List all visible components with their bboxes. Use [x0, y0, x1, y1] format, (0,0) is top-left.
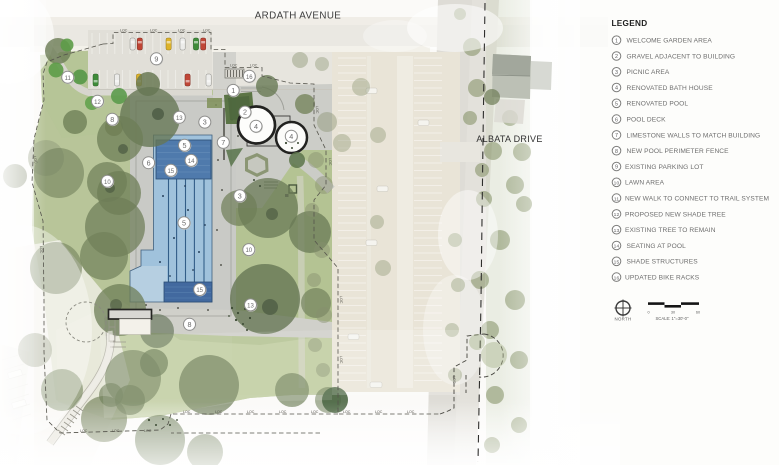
svg-text:12: 12	[614, 212, 620, 218]
svg-text:LOC: LOC	[339, 296, 343, 304]
svg-text:16: 16	[614, 275, 620, 281]
svg-text:3: 3	[238, 191, 242, 200]
svg-text:13: 13	[614, 228, 620, 234]
svg-text:LOC: LOC	[407, 410, 415, 414]
svg-text:0: 0	[647, 311, 649, 315]
svg-text:PICNIC AREA: PICNIC AREA	[627, 69, 670, 76]
svg-text:9: 9	[154, 54, 158, 63]
svg-text:LOC: LOC	[343, 410, 351, 414]
svg-text:14: 14	[614, 244, 620, 250]
svg-text:LIMESTONE WALLS TO MATCH BUILD: LIMESTONE WALLS TO MATCH BUILDING	[627, 132, 761, 139]
svg-text:15: 15	[614, 260, 620, 266]
svg-text:13: 13	[247, 304, 254, 310]
svg-text:GRAVEL ADJACENT TO BUILDING: GRAVEL ADJACENT TO BUILDING	[627, 53, 736, 60]
svg-text:NEW WALK TO CONNECT TO TRAIL S: NEW WALK TO CONNECT TO TRAIL SYSTEM	[625, 196, 769, 203]
svg-text:16: 16	[246, 75, 253, 81]
svg-text:LOC: LOC	[203, 28, 211, 32]
svg-text:2: 2	[243, 108, 247, 117]
svg-text:13: 13	[176, 116, 183, 122]
svg-text:LOC: LOC	[339, 356, 343, 364]
svg-text:7: 7	[615, 133, 618, 139]
svg-text:LOC: LOC	[452, 376, 456, 384]
svg-text:LOC: LOC	[250, 63, 258, 67]
svg-text:6: 6	[147, 158, 151, 167]
svg-text:POOL DECK: POOL DECK	[627, 117, 667, 124]
svg-text:15: 15	[167, 169, 174, 175]
svg-text:SCALE: 1"=30'-0": SCALE: 1"=30'-0"	[656, 316, 690, 321]
svg-text:LOC: LOC	[279, 410, 287, 414]
svg-text:NORTH: NORTH	[614, 317, 631, 322]
svg-text:EXISTING TREE TO REMAIN: EXISTING TREE TO REMAIN	[625, 227, 716, 234]
svg-text:UPDATED BIKE RACKS: UPDATED BIKE RACKS	[625, 275, 700, 282]
svg-text:5: 5	[183, 141, 187, 150]
svg-text:LOC: LOC	[230, 63, 238, 67]
svg-text:8: 8	[188, 320, 192, 329]
svg-text:NEW POOL PERIMETER FENCE: NEW POOL PERIMETER FENCE	[627, 148, 730, 155]
svg-text:4: 4	[615, 86, 618, 92]
svg-text:30: 30	[671, 311, 675, 315]
svg-text:12: 12	[94, 100, 101, 106]
svg-text:5: 5	[182, 218, 186, 227]
svg-text:1: 1	[231, 86, 235, 95]
svg-text:2: 2	[615, 54, 618, 60]
svg-text:LOC: LOC	[150, 28, 158, 32]
svg-text:10: 10	[245, 248, 252, 254]
svg-text:LOC: LOC	[311, 410, 319, 414]
svg-text:LOC: LOC	[144, 429, 152, 433]
svg-text:LOC: LOC	[112, 429, 120, 433]
svg-text:EXISTING PARKING LOT: EXISTING PARKING LOT	[625, 164, 703, 171]
svg-text:4: 4	[289, 132, 293, 141]
svg-text:7: 7	[221, 138, 225, 147]
svg-text:6: 6	[615, 117, 618, 123]
svg-text:LOC: LOC	[178, 28, 186, 32]
svg-text:LOC: LOC	[39, 246, 44, 254]
svg-text:4: 4	[254, 122, 258, 131]
svg-text:LOC: LOC	[375, 410, 383, 414]
svg-text:LOC: LOC	[328, 158, 332, 166]
svg-text:10: 10	[614, 181, 620, 187]
svg-text:SHADE STRUCTURES: SHADE STRUCTURES	[627, 259, 699, 266]
svg-text:LOC: LOC	[315, 106, 319, 114]
svg-text:LOC: LOC	[80, 429, 88, 433]
svg-text:RENOVATED POOL: RENOVATED POOL	[627, 101, 689, 108]
svg-text:PROPOSED NEW SHADE TREE: PROPOSED NEW SHADE TREE	[625, 211, 726, 218]
svg-text:WELCOME GARDEN AREA: WELCOME GARDEN AREA	[627, 38, 713, 45]
svg-text:9: 9	[615, 165, 618, 171]
svg-text:8: 8	[615, 149, 618, 155]
svg-text:3: 3	[615, 70, 618, 76]
svg-text:SEATING AT POOL: SEATING AT POOL	[627, 243, 687, 250]
svg-text:ARDATH AVENUE: ARDATH AVENUE	[255, 11, 342, 22]
svg-text:RENOVATED BATH HOUSE: RENOVATED BATH HOUSE	[627, 85, 714, 92]
svg-text:5: 5	[615, 102, 618, 108]
svg-text:14: 14	[188, 159, 195, 165]
svg-text:LOC: LOC	[120, 28, 128, 32]
svg-text:1: 1	[615, 38, 618, 44]
svg-text:11: 11	[614, 196, 619, 202]
svg-text:15: 15	[196, 288, 203, 294]
svg-text:LEGEND: LEGEND	[612, 19, 648, 28]
svg-text:ALBATA DRIVE: ALBATA DRIVE	[476, 134, 542, 144]
svg-text:LOC: LOC	[183, 410, 191, 414]
svg-text:8: 8	[110, 115, 114, 124]
svg-text:LOC: LOC	[247, 410, 255, 414]
svg-text:10: 10	[104, 180, 111, 186]
svg-text:11: 11	[65, 76, 72, 82]
svg-text:LOC: LOC	[215, 410, 223, 414]
svg-text:60: 60	[696, 311, 700, 315]
svg-text:LAWN AREA: LAWN AREA	[625, 180, 665, 187]
svg-text:3: 3	[203, 118, 207, 127]
